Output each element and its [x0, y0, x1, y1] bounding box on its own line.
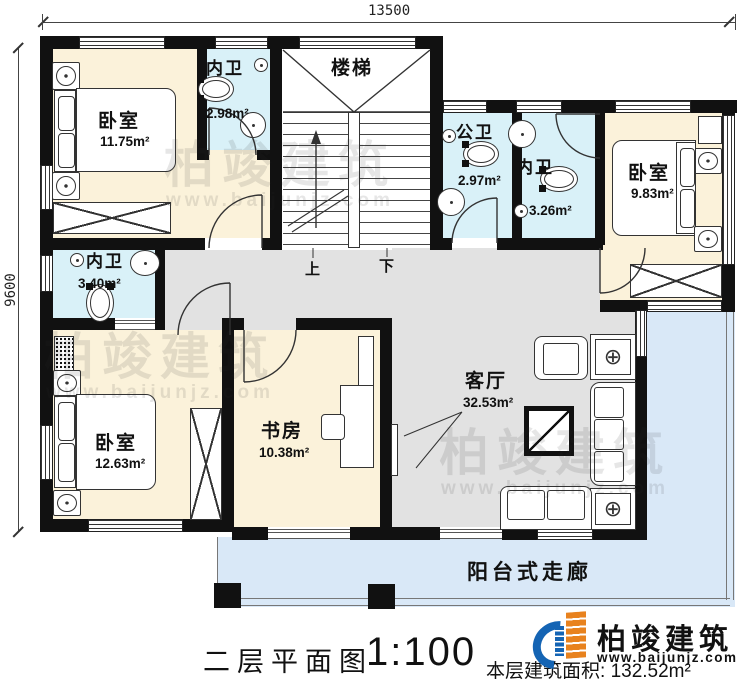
pillow-icon — [58, 133, 75, 168]
plant-table-icon: ⊕ — [590, 334, 636, 380]
wall-baths-south — [430, 238, 452, 250]
nightstand-icon — [52, 172, 80, 200]
room-area-living: 32.53m² — [463, 395, 513, 410]
desk-icon — [340, 385, 374, 468]
dimension-height-label: 9600 — [3, 273, 19, 307]
chair-icon — [321, 414, 345, 440]
window — [79, 36, 165, 49]
plan-title: 二层平面图 — [203, 640, 373, 679]
room-label-study: 书房 — [261, 416, 303, 443]
window — [443, 100, 487, 113]
balcony-column — [214, 583, 241, 608]
room-label-bedroom-tl: 卧室 — [98, 106, 140, 133]
wall-bath-bedroom — [595, 112, 605, 245]
wall-living-east — [635, 357, 647, 540]
sink-icon — [130, 250, 160, 276]
wall-baths-south — [497, 238, 603, 250]
lamp-icon — [514, 204, 528, 218]
plan-scale: 1:100 — [366, 630, 476, 675]
stairs-down-label: 下 — [379, 255, 394, 276]
wall-stairs-west — [270, 49, 282, 248]
sofa-icon — [590, 382, 636, 486]
nightstand-icon — [52, 62, 80, 90]
stairs-up-label: 上 — [305, 258, 320, 279]
room-area-bath-public: 2.97m² — [458, 173, 501, 188]
window — [215, 36, 268, 49]
window — [635, 310, 647, 357]
nightstand-icon — [53, 490, 81, 516]
dimension-width-label: 13500 — [368, 3, 410, 19]
wall-study-south — [232, 527, 268, 540]
stair-rail — [348, 112, 360, 248]
window — [40, 425, 53, 480]
room-area-bedroom-bl: 12.63m² — [95, 456, 145, 471]
sofa-icon — [500, 486, 592, 530]
room-area-bath-tr: 3.26m² — [529, 203, 572, 218]
window — [722, 115, 735, 265]
room-area-bedroom-tr: 9.83m² — [631, 186, 674, 201]
window — [615, 100, 691, 113]
room-label-balcony: 阳台式走廊 — [467, 556, 592, 586]
window — [516, 100, 562, 113]
cabinet-icon — [358, 336, 374, 386]
room-area-bedroom-tl: 11.75m² — [100, 134, 150, 149]
room-area-bath-ml: 3.40m² — [78, 276, 121, 291]
room-label-bath-public: 公卫 — [456, 118, 494, 143]
nightstand-icon — [53, 370, 81, 396]
pillow-icon — [58, 402, 75, 441]
window — [299, 36, 416, 49]
wall-study-north — [234, 318, 244, 330]
nightstand-icon — [694, 148, 722, 174]
room-label-bath-tr: 内卫 — [516, 153, 554, 178]
lamp-icon — [254, 58, 268, 72]
balcony-railing-south — [217, 598, 730, 606]
wall-study-north — [296, 318, 380, 330]
wardrobe-icon — [53, 202, 171, 234]
toilet-icon — [198, 76, 234, 102]
sliding-door-bath-ml — [115, 320, 155, 330]
wall-bath-tl-south — [197, 150, 209, 160]
wall-bath-tl-south — [257, 150, 282, 160]
sliding-door-study — [268, 529, 350, 539]
sink-icon — [437, 188, 465, 216]
wall-bedroom-bl-east — [222, 318, 234, 532]
wall-stairs-east — [430, 36, 443, 250]
room-area-study: 10.38m² — [259, 445, 309, 460]
room-area-bath-tl: 2.98m² — [206, 106, 249, 121]
sink-icon — [508, 120, 536, 148]
wall-study-south — [350, 527, 380, 540]
window — [647, 300, 722, 312]
room-label-bath-tl: 内卫 — [206, 54, 244, 79]
wardrobe-icon — [630, 264, 722, 298]
pillow-icon — [58, 443, 75, 482]
brand-website: www.baijunjz.com — [597, 650, 738, 665]
dimension-line-top — [42, 22, 736, 23]
pillow-icon — [680, 189, 695, 228]
dimension-ext — [42, 14, 43, 30]
balcony-column — [368, 584, 395, 609]
armchair-icon — [534, 336, 588, 380]
tv-icon — [391, 424, 398, 476]
brand-logo-icon — [534, 610, 592, 676]
sliding-door-living — [440, 529, 502, 539]
lamp-icon — [442, 129, 456, 143]
plant-table-icon: ⊕ — [590, 488, 636, 530]
corner-shelf-icon — [698, 116, 722, 144]
coffee-table-icon — [524, 406, 574, 456]
floor-plan: 13500 9600 — [0, 0, 750, 684]
wall-bedroom-tl-south — [262, 238, 282, 250]
wall-bath-ml-south — [155, 318, 165, 330]
room-label-bedroom-bl: 卧室 — [95, 428, 137, 455]
stair-treads-left — [283, 112, 348, 249]
balcony-east — [647, 300, 735, 607]
room-label-bath-ml: 内卫 — [86, 247, 124, 272]
stair-treads-right — [360, 112, 430, 249]
balcony-railing-east — [726, 300, 734, 600]
nightstand-icon — [694, 226, 722, 252]
room-label-living: 客厅 — [465, 366, 507, 393]
dimension-ext — [735, 14, 736, 30]
window — [88, 519, 183, 532]
wardrobe-icon — [190, 408, 222, 520]
lamp-icon — [70, 253, 84, 267]
room-label-stairs: 楼梯 — [331, 53, 373, 80]
logo-building-orange-icon — [566, 611, 586, 658]
window — [40, 255, 53, 292]
pillow-icon — [58, 96, 75, 131]
logo-building-blue-icon — [555, 626, 564, 656]
pillow-icon — [680, 148, 695, 187]
wall-living-south — [392, 527, 440, 540]
toilet-icon — [463, 141, 499, 167]
room-label-bedroom-tr: 卧室 — [628, 158, 670, 185]
